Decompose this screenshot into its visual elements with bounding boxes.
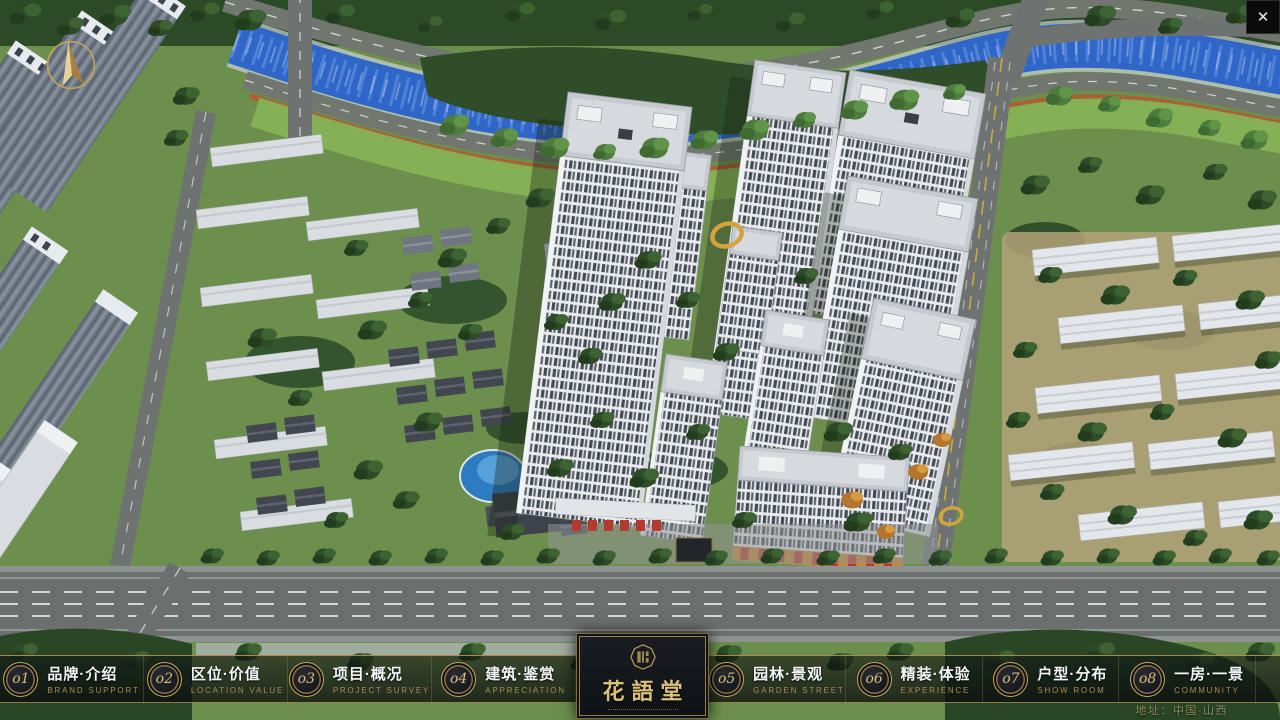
nav-item-subtitle: COMMUNITY	[1174, 686, 1240, 695]
project-address: 地址：中国·山西	[1135, 702, 1228, 718]
nav-item-medal: o2	[147, 662, 182, 697]
nav-item-o2[interactable]: o2 区位·价值 LOCATION VALUE	[144, 656, 288, 702]
nav-item-o1[interactable]: o1 品牌·介绍 BRAND SUPPORT	[0, 656, 144, 702]
nav-item-number: o2	[156, 671, 173, 687]
nav-item-number: o7	[1002, 671, 1019, 687]
nav-item-subtitle: APPRECIATION	[485, 686, 566, 695]
nav-item-subtitle: GARDEN STREET	[753, 686, 844, 695]
logo-seal-icon	[629, 643, 657, 671]
close-button[interactable]: ✕	[1246, 0, 1280, 34]
presentation-screen: ✕ o1 品牌·介绍 BRAND SUPPORT o2 区位·价值 LOCATI…	[0, 0, 1280, 720]
nav-item-medal: o5	[709, 662, 744, 697]
nav-item-title: 户型·分布	[1037, 663, 1107, 684]
nav-item-title: 品牌·介绍	[47, 663, 117, 684]
nav-item-subtitle: LOCATION VALUE	[191, 686, 284, 695]
nav-item-title: 园林·景观	[753, 663, 823, 684]
nav-item-medal: o6	[857, 662, 892, 697]
nav-item-number: o1	[12, 671, 29, 687]
nav-item-subtitle: PROJECT SURVEY	[333, 686, 430, 695]
nav-item-o3[interactable]: o3 项目·概况 PROJECT SURVEY	[288, 656, 432, 702]
nav-item-number: o5	[718, 671, 735, 687]
nav-item-title: 建筑·鉴赏	[485, 663, 555, 684]
project-name: 花語堂	[595, 674, 689, 706]
nav-item-o7[interactable]: o7 户型·分布 SHOW ROOM	[983, 656, 1120, 702]
nav-item-subtitle: SHOW ROOM	[1037, 686, 1105, 695]
nav-item-title: 项目·概况	[333, 663, 403, 684]
nav-item-number: o4	[450, 671, 467, 687]
masterplan-viewport[interactable]	[0, 0, 1280, 720]
logo-caption-rule	[608, 709, 678, 710]
nav-item-o8[interactable]: o8 一房·一景 COMMUNITY	[1119, 656, 1256, 702]
nav-item-medal: o7	[993, 662, 1028, 697]
project-logo[interactable]: 花語堂	[576, 633, 709, 719]
nav-item-title: 一房·一景	[1174, 663, 1244, 684]
nav-item-o4[interactable]: o4 建筑·鉴赏 APPRECIATION	[432, 656, 576, 702]
nav-item-medal: o3	[289, 662, 324, 697]
nav-item-title: 区位·价值	[191, 663, 261, 684]
nav-item-o5[interactable]: o5 园林·景观 GARDEN STREET	[709, 656, 846, 702]
nav-item-number: o8	[1139, 671, 1156, 687]
nav-item-medal: o4	[441, 662, 476, 697]
navbar-left-group: o1 品牌·介绍 BRAND SUPPORT o2 区位·价值 LOCATION…	[0, 656, 576, 702]
nav-item-subtitle: BRAND SUPPORT	[47, 686, 139, 695]
nav-item-medal: o8	[1130, 662, 1165, 697]
navbar-right-group: o5 园林·景观 GARDEN STREET o6 精装·体验 EXPERIEN…	[709, 656, 1280, 702]
nav-item-o6[interactable]: o6 精装·体验 EXPERIENCE	[846, 656, 983, 702]
compass-icon	[42, 36, 100, 94]
nav-item-number: o3	[298, 671, 315, 687]
nav-item-subtitle: EXPERIENCE	[901, 686, 971, 695]
nav-item-title: 精装·体验	[901, 663, 971, 684]
nav-item-number: o6	[865, 671, 882, 687]
nav-item-medal: o1	[3, 662, 38, 697]
